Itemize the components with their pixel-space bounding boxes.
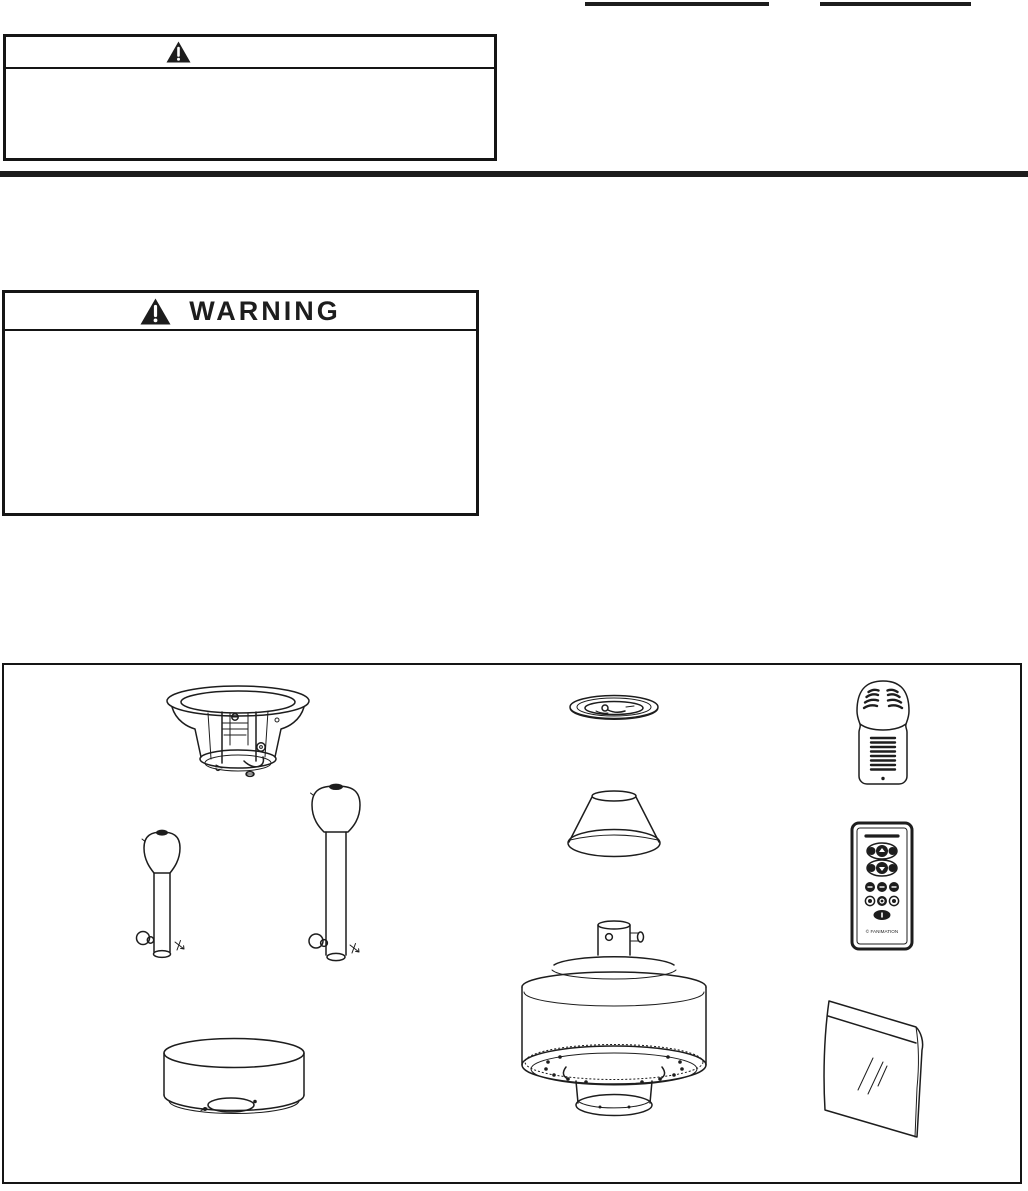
- hardware-bag-icon: [816, 998, 944, 1148]
- caution-box: [3, 34, 497, 161]
- fan-motor-assembly-icon: [510, 919, 718, 1135]
- downrod-long-icon: [296, 783, 376, 975]
- warning-triangle-icon: [140, 298, 171, 325]
- package-contents-box: © FANIMATION: [2, 663, 1022, 1184]
- warning-box-title: WARNING: [189, 296, 341, 327]
- ceiling-trim-ring-icon: [568, 693, 660, 727]
- section-divider-rule: [0, 171, 1028, 177]
- downrod-short-icon: [128, 828, 196, 968]
- warning-box: WARNING: [2, 290, 479, 516]
- warning-box-header: WARNING: [5, 293, 476, 331]
- write-in-line-right: [820, 2, 971, 6]
- handheld-remote-icon: © FANIMATION: [850, 821, 914, 951]
- ceiling-mounting-bracket-icon: [164, 683, 312, 779]
- canopy-icon: [562, 785, 666, 863]
- warning-triangle-icon: [166, 41, 191, 63]
- write-in-line-left: [585, 2, 769, 6]
- receiver-unit-icon: [847, 677, 919, 789]
- manual-page: { "colors": { "ink": "#1d1d1d", "paper":…: [0, 0, 1028, 1191]
- close-mount-housing-icon: [158, 1035, 310, 1137]
- remote-brand-text: © FANIMATION: [866, 928, 898, 934]
- caution-box-header: [6, 37, 494, 69]
